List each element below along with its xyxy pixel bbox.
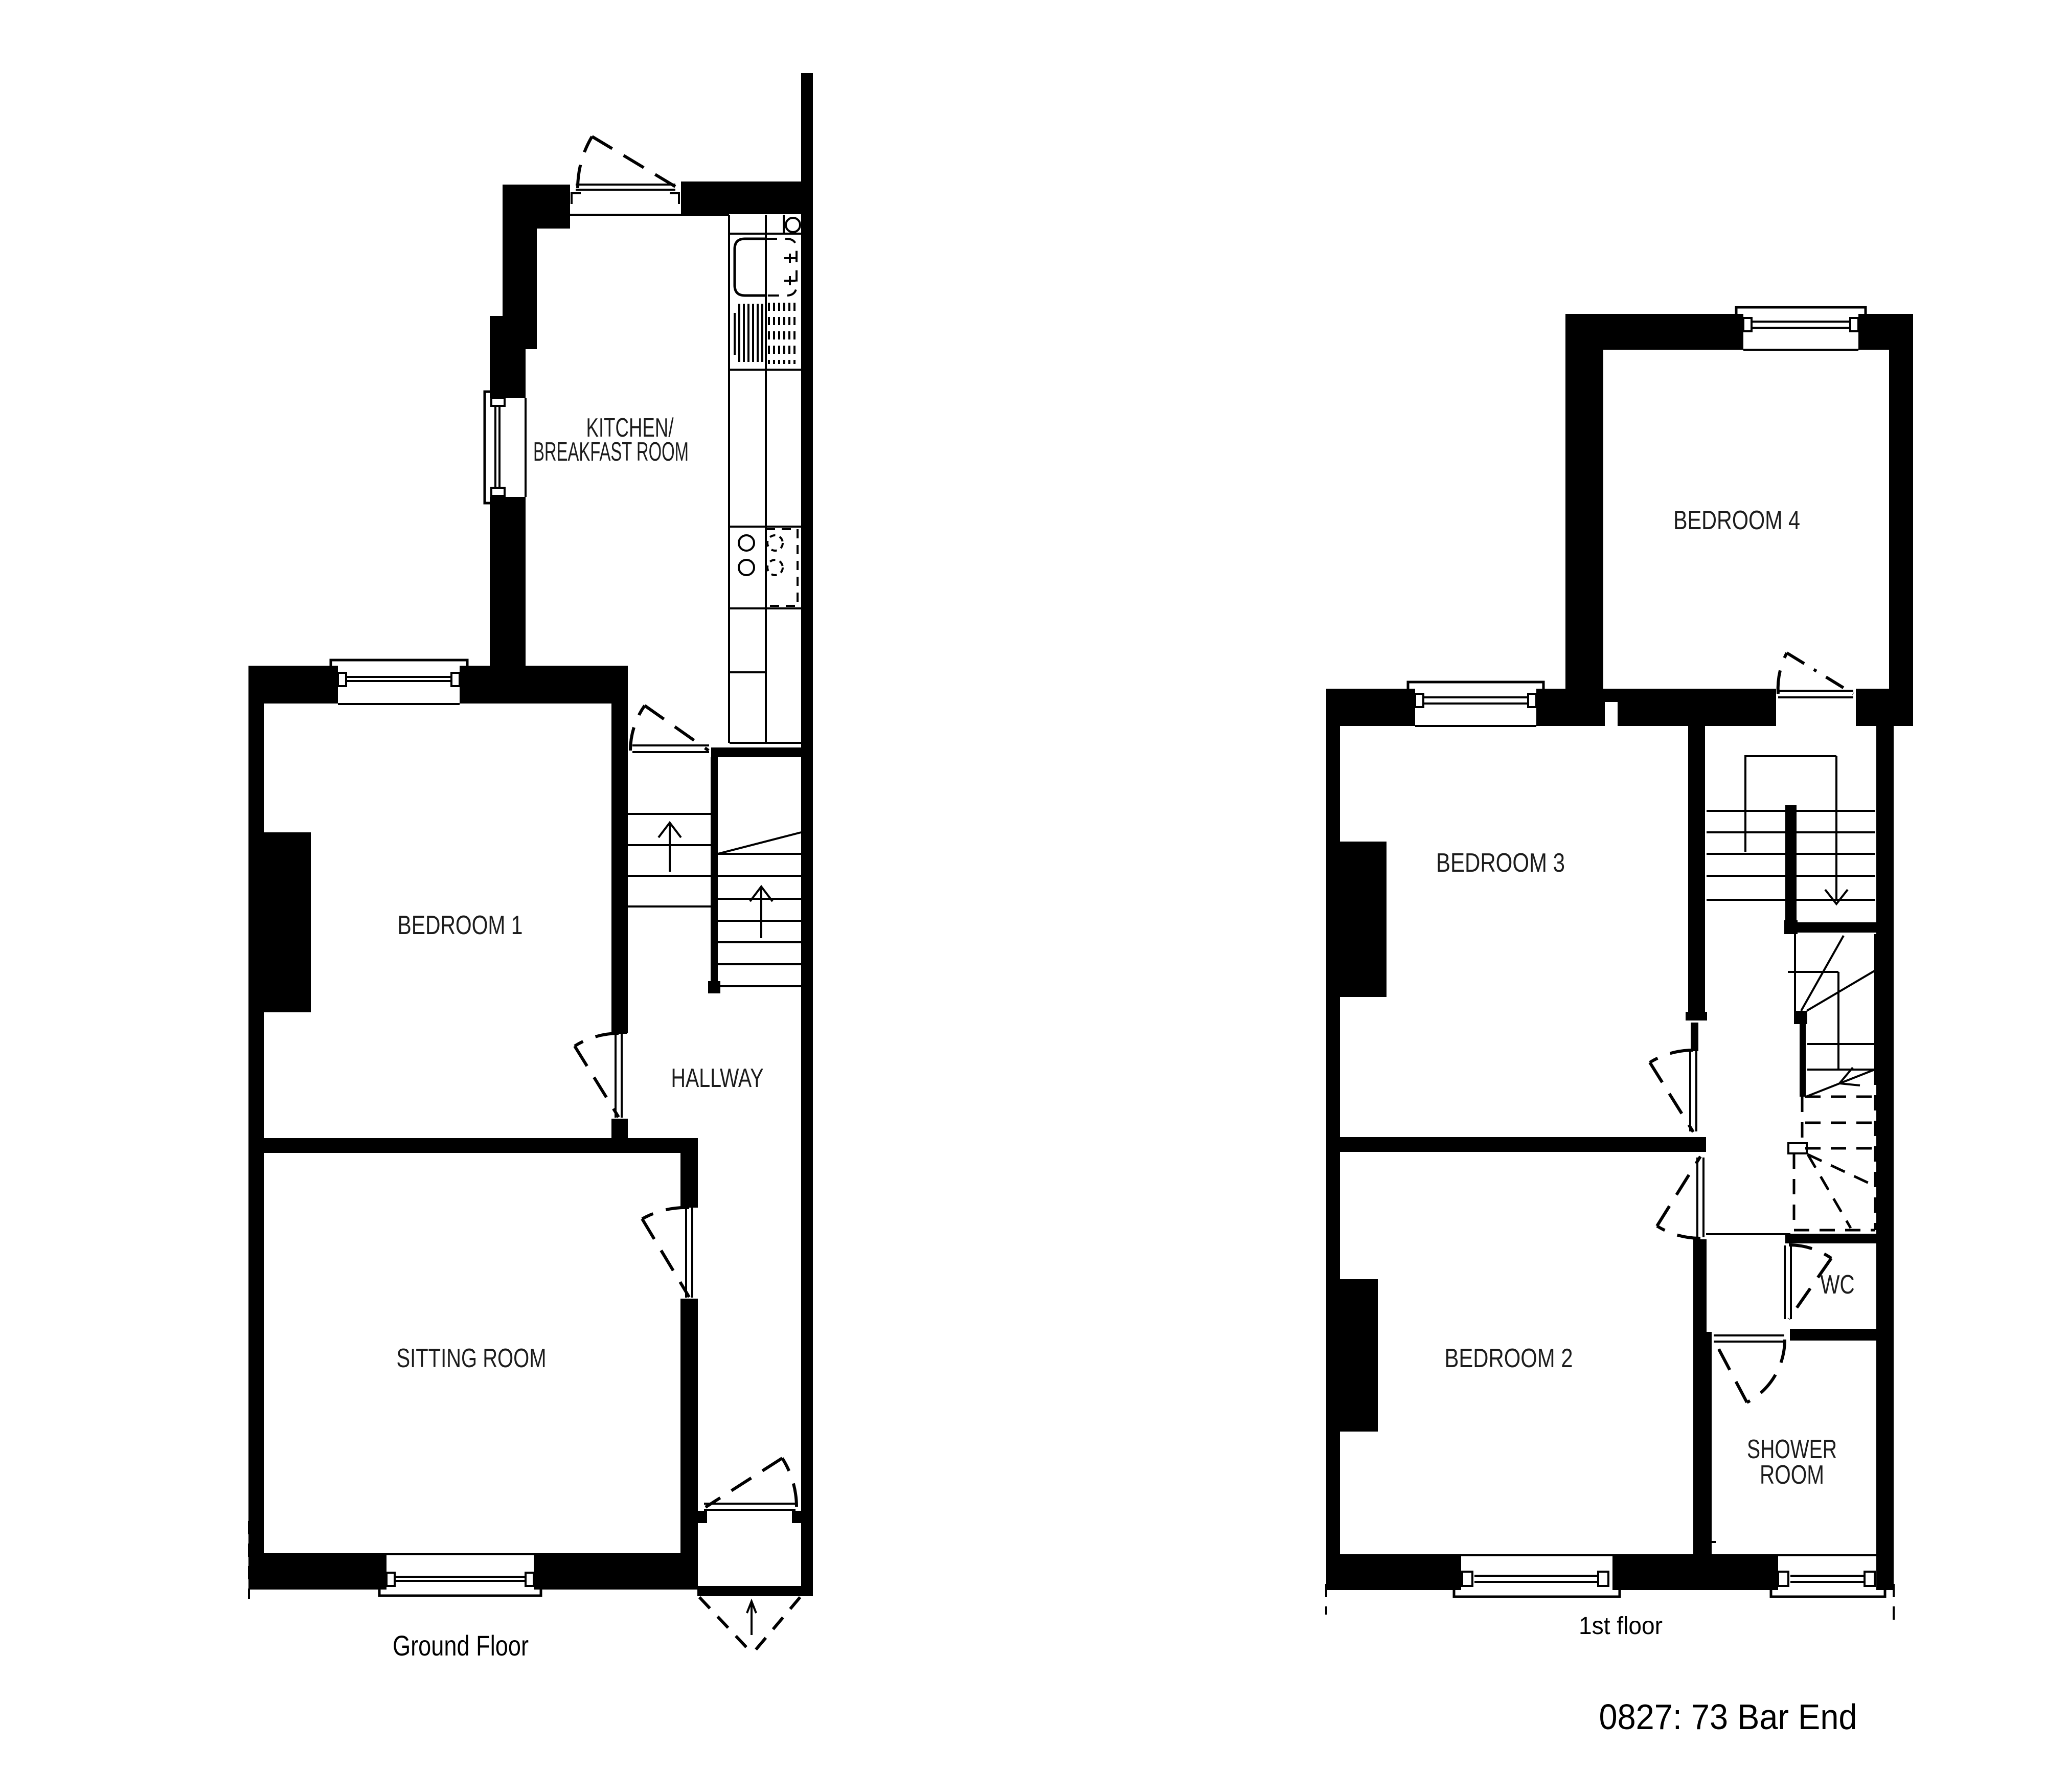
svg-text:Ground Floor: Ground Floor bbox=[393, 1629, 529, 1662]
svg-text:BEDROOM 3: BEDROOM 3 bbox=[1436, 848, 1565, 878]
svg-text:HALLWAY: HALLWAY bbox=[671, 1063, 764, 1093]
svg-text:1st floor: 1st floor bbox=[1579, 1613, 1663, 1640]
svg-text:WC: WC bbox=[1821, 1270, 1855, 1300]
svg-text:BEDROOM 4: BEDROOM 4 bbox=[1673, 506, 1800, 535]
svg-text:BEDROOM 1: BEDROOM 1 bbox=[398, 911, 523, 940]
svg-text:0827: 73 Bar End: 0827: 73 Bar End bbox=[1599, 1697, 1857, 1737]
svg-text:BEDROOM 2: BEDROOM 2 bbox=[1445, 1344, 1573, 1373]
svg-text:BREAKFAST ROOM: BREAKFAST ROOM bbox=[533, 437, 689, 467]
svg-text:ROOM: ROOM bbox=[1760, 1460, 1824, 1490]
svg-text:SITTING ROOM: SITTING ROOM bbox=[397, 1344, 547, 1373]
